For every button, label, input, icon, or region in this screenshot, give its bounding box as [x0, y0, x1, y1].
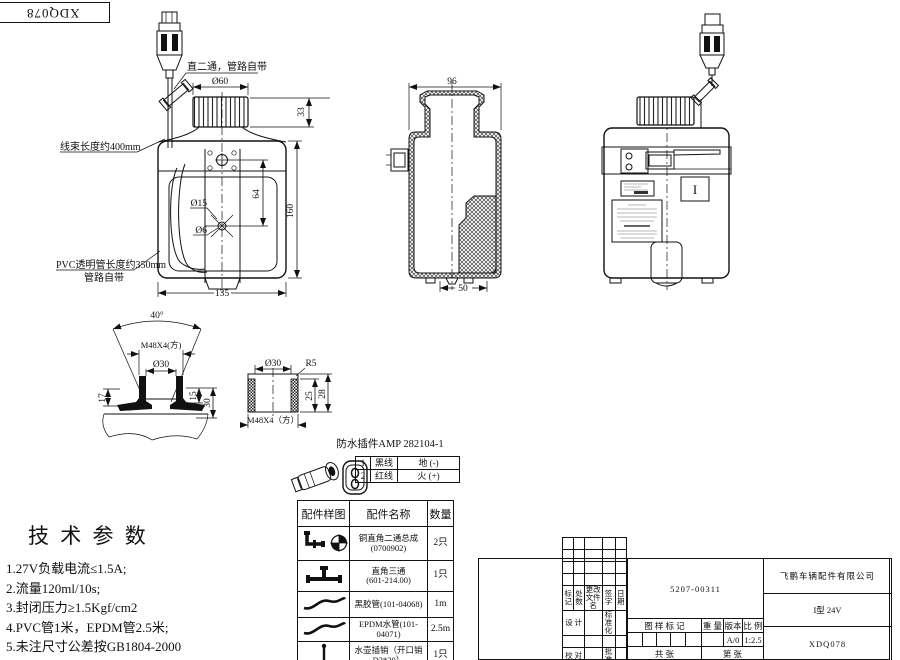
pin-row: 1 黑线 地 (-) — [356, 457, 460, 470]
part-name: EPDM水管(101-04071) — [350, 620, 427, 639]
dim-25: 25 — [305, 391, 315, 401]
note-pvc-1: PVC透明管长度约350mm — [56, 258, 166, 271]
weight-label: 重 量 — [701, 618, 724, 633]
part-qty: 2只 — [428, 527, 454, 561]
scale-label: 比 例 — [742, 618, 764, 633]
scale-value: 1:2.5 — [742, 632, 764, 647]
pump-housing — [651, 242, 682, 283]
wire-connector-icon — [700, 14, 724, 75]
company-name: 飞鹏车辆配件有限公司 — [763, 558, 892, 594]
col-header-name: 配件名称 — [350, 501, 428, 527]
pin-table: 1 黑线 地 (-) 2 红线 火 (+) — [355, 456, 460, 483]
section-view: 96 50 — [386, 77, 501, 294]
parts-row: 水壶插销（开口销 D3*30） 1只 — [298, 642, 454, 660]
part-qty: 1m — [428, 592, 454, 618]
engineering-drawing-page: { "corner_code": "XDQ078", "views": { "f… — [0, 0, 900, 660]
rev-header: 更改文件名 — [584, 585, 602, 610]
dim-96: 96 — [447, 77, 457, 87]
dim-64: 64 — [252, 189, 262, 199]
note-pvc-2: 管路自带 — [84, 271, 124, 284]
tech-param-item: 4.PVC管1米，EPDM管2.5米; — [6, 618, 246, 638]
part-qty: 2.5m — [428, 618, 454, 642]
rev-header: 标记 — [563, 585, 574, 610]
title-block: 标记 处数 更改文件名 签 字 日 期 设 计 标准化 校 对 批 准 审 核 … — [478, 558, 890, 660]
inline-fitting-icon — [159, 79, 193, 110]
part-qty: 1只 — [428, 642, 454, 660]
stamp-label: 图 样 标 记 — [627, 618, 702, 633]
col-header-qty: 数量 — [428, 501, 454, 527]
pump-chamber-section — [459, 196, 496, 273]
hose-icon — [299, 618, 349, 638]
tech-param-item: 2.流量120ml/10s; — [6, 579, 246, 599]
plug-side-icon — [290, 461, 340, 494]
rev-header: 处数 — [574, 585, 585, 610]
detail-cap: Ø30 R5 25 28 M48X4（方） — [240, 359, 332, 428]
dim-28: 28 — [318, 389, 328, 399]
dim-thread: M48X4（方） — [247, 415, 299, 425]
type-mark: I — [693, 182, 697, 197]
tech-param-item: 1.27V负载电流≤1.5A; — [6, 559, 246, 579]
parts-row: 铜直角二通总成 (0700902) 2只 — [298, 527, 454, 561]
corner-code-box: XDQ078 — [0, 2, 110, 23]
part-code: (601-214.00) — [350, 576, 427, 586]
dim-thread: M48X4(方) — [141, 340, 182, 350]
role-approve: 批 准 — [602, 647, 615, 660]
dim-angle: 40° — [150, 310, 164, 321]
dim-cap-h: 33 — [297, 107, 307, 117]
col-header-sample: 配件样图 — [298, 501, 350, 527]
filler-cap — [193, 97, 248, 127]
part-name: 黑胶管(101-04068) — [350, 600, 427, 610]
dim-30: 30 — [203, 398, 213, 408]
note-fitting: 直二通，管路自带 — [187, 60, 267, 73]
role-design: 设 计 — [563, 610, 585, 635]
dim-17: 17 — [98, 393, 108, 403]
role-check: 校 对 — [563, 647, 585, 660]
dim-d6: Ø6 — [195, 226, 207, 236]
tee-fitting-icon — [299, 563, 349, 587]
parts-row: 黑胶管(101-04068) 1m — [298, 592, 454, 618]
connector-title: 防水插件AMP 282104-1 — [300, 436, 480, 451]
parts-row: 直角三通 (601-214.00) 1只 — [298, 561, 454, 592]
pin-signal: 地 (-) — [398, 457, 460, 470]
dim-d15: Ø15 — [191, 199, 208, 209]
front-view: 直二通，管路自带 Ø60 33 — [56, 12, 330, 299]
revision-table: 标记 处数 更改文件名 签 字 日 期 设 计 标准化 校 对 批 准 审 核 … — [478, 558, 627, 660]
version-label: 版本 — [723, 618, 743, 633]
sheet-total: 共 张 — [627, 646, 702, 660]
tech-param-item: 5.未注尺寸公差按GB1804-2000 — [6, 637, 246, 657]
side-view: I — [602, 14, 731, 290]
dim-50: 50 — [458, 284, 468, 294]
pin-no: 1 — [356, 457, 371, 470]
dim-dia: Ø30 — [265, 359, 282, 369]
dim-width: 135 — [215, 289, 230, 299]
part-code: D3*30） — [350, 656, 427, 660]
pin-icon — [299, 642, 349, 660]
version-value: A/0 — [723, 632, 743, 647]
corner-code: XDQ078 — [26, 5, 80, 21]
pin-wire: 黑线 — [371, 457, 398, 470]
parts-header-row: 配件样图 配件名称 数量 — [298, 501, 454, 527]
pin-row: 2 红线 火 (+) — [356, 470, 460, 483]
parts-row: EPDM水管(101-04071) 2.5m — [298, 618, 454, 642]
dim-dia: Ø30 — [153, 360, 170, 370]
rev-header: 签 字 — [602, 585, 615, 610]
rev-header: 日 期 — [615, 585, 626, 610]
tech-params: 技 术 参 数 1.27V负载电流≤1.5A; 2.流量120ml/10s; 3… — [6, 520, 246, 657]
part-code: (0700902) — [350, 544, 427, 554]
drawing-number: XDQ078 — [763, 626, 892, 660]
note-harness: 线束长度约400mm — [60, 140, 141, 153]
part-number: 5207-00311 — [627, 558, 764, 619]
tech-params-title: 技 术 参 数 — [28, 520, 246, 550]
pin-signal: 火 (+) — [398, 470, 460, 483]
pin-wire: 红线 — [371, 470, 398, 483]
part-qty: 1只 — [428, 561, 454, 592]
dim-height: 160 — [286, 204, 296, 219]
dim-r5: R5 — [305, 359, 316, 369]
dim-cap-dia: Ø60 — [212, 77, 229, 87]
inline-fitting-icon — [691, 78, 719, 106]
detail-funnel: 40° M48X4(方) Ø30 17 15 30 — [98, 310, 217, 440]
wire-connector-icon — [157, 12, 182, 78]
dim-15: 15 — [189, 391, 199, 401]
model-designation: I型 24V — [763, 593, 892, 627]
filler-cap — [637, 97, 694, 125]
elbow-assembly-icon — [299, 528, 349, 556]
role-standard: 标准化 — [602, 610, 615, 635]
hose-icon — [299, 593, 349, 613]
sheet-number: 第 张 — [701, 646, 764, 660]
parts-table: 配件样图 配件名称 数量 铜直角二通总成 (0700902) 2只 直角三通 ( — [297, 500, 454, 660]
pin-no: 2 — [356, 470, 371, 483]
tech-param-item: 3.封闭压力≥1.5Kgf/cm2 — [6, 598, 246, 618]
